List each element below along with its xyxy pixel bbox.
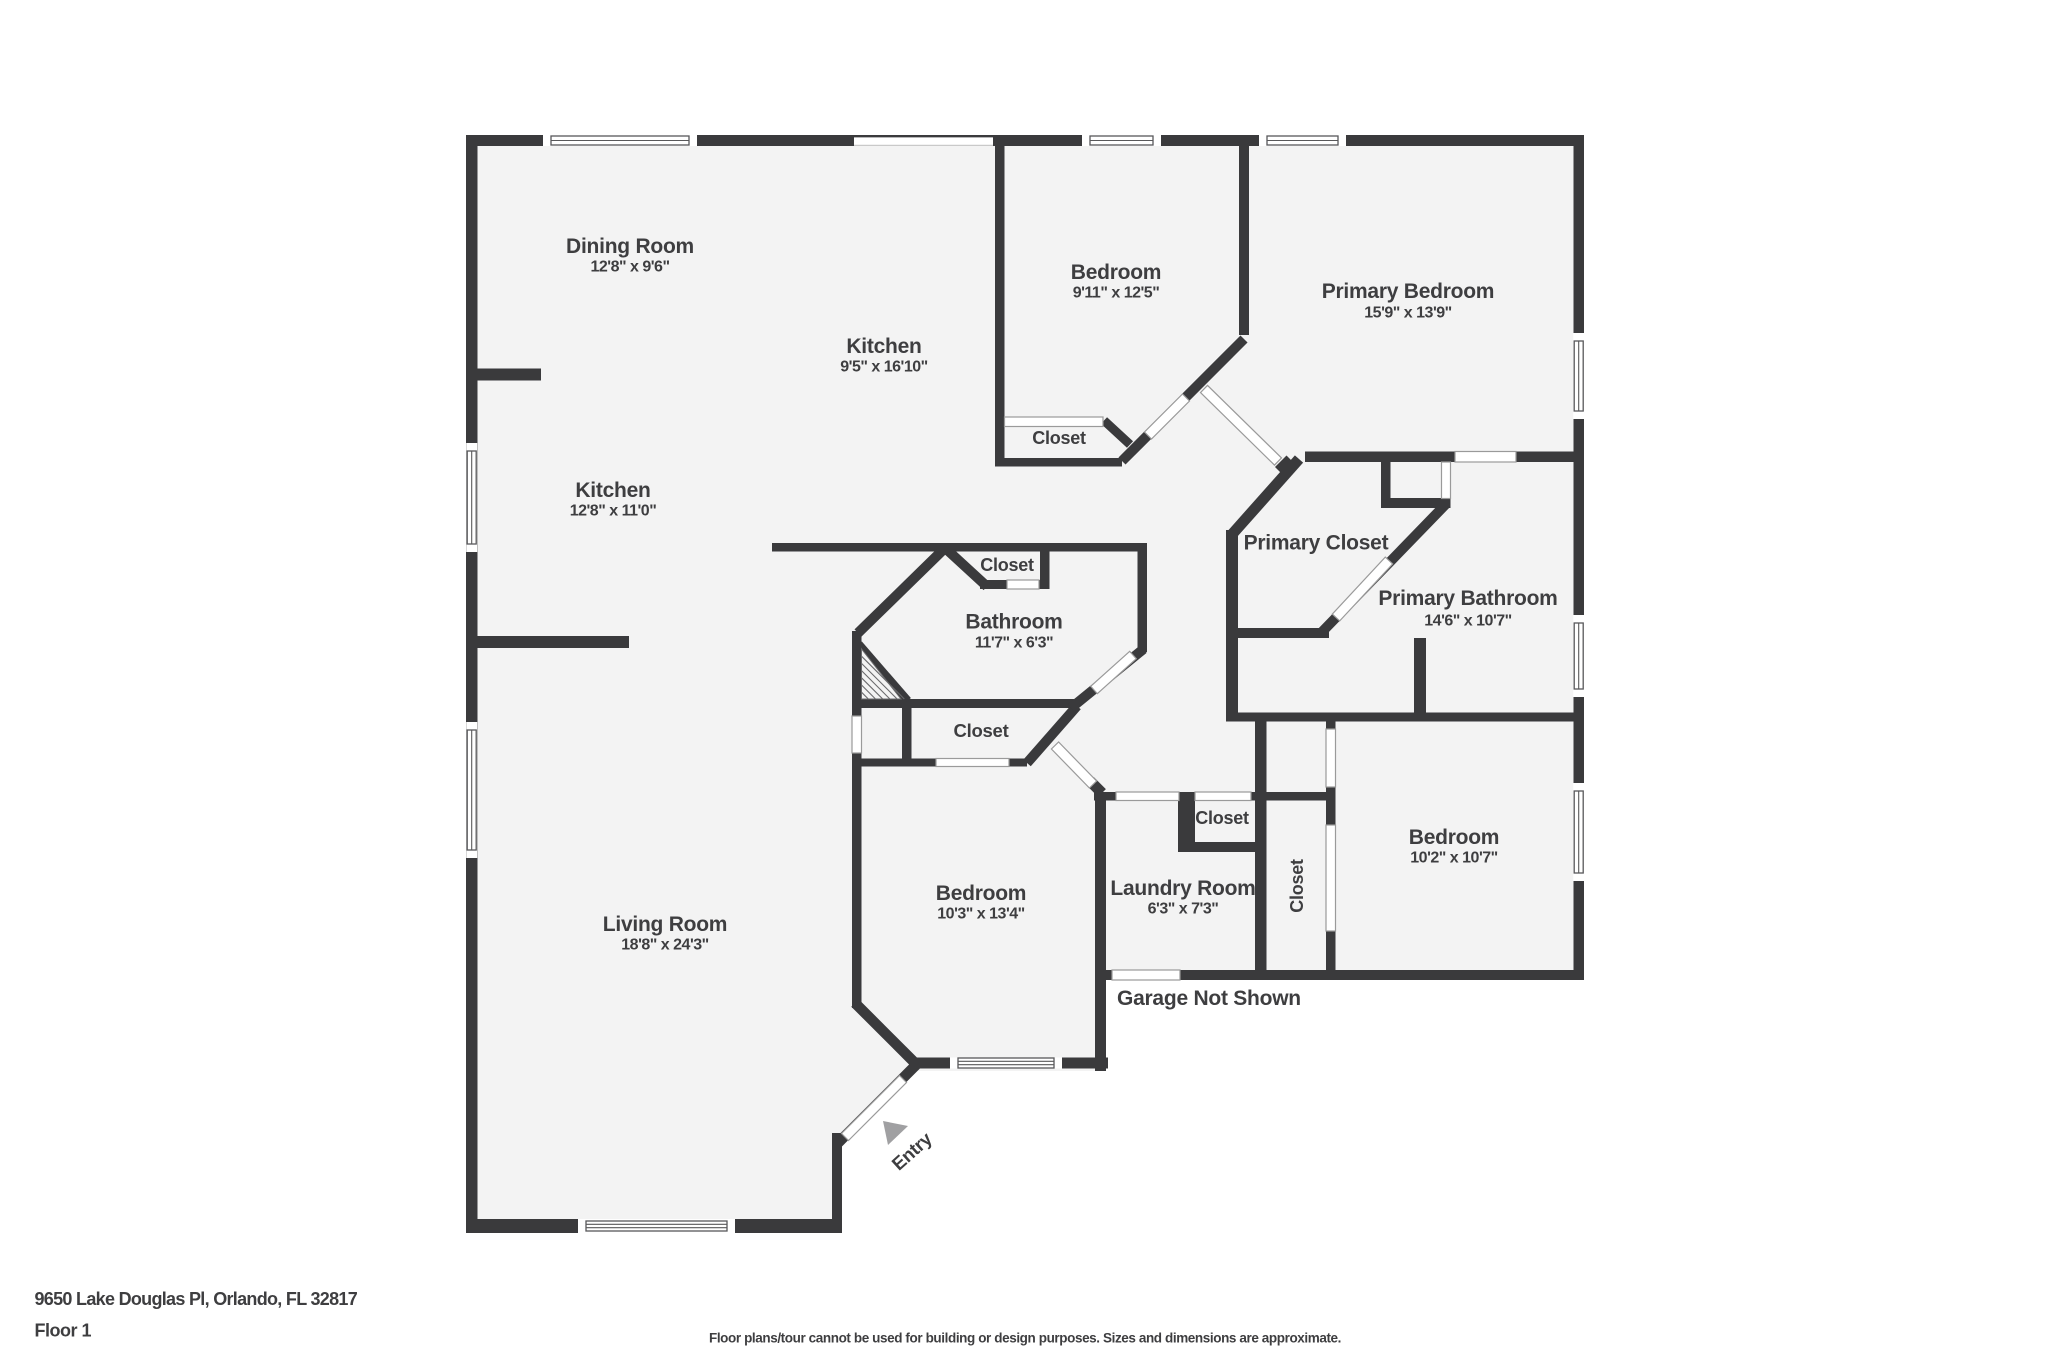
svg-text:Primary Bedroom: Primary Bedroom bbox=[1322, 280, 1494, 303]
svg-text:9'11" x 12'5": 9'11" x 12'5" bbox=[1073, 285, 1160, 302]
svg-text:Kitchen: Kitchen bbox=[846, 335, 921, 358]
svg-text:Bathroom: Bathroom bbox=[965, 611, 1062, 634]
svg-text:Garage Not Shown: Garage Not Shown bbox=[1117, 987, 1301, 1010]
svg-text:Closet: Closet bbox=[1195, 808, 1249, 828]
svg-text:11'7" x 6'3": 11'7" x 6'3" bbox=[975, 635, 1053, 652]
svg-text:Closet: Closet bbox=[1032, 428, 1086, 448]
svg-text:10'2" x 10'7": 10'2" x 10'7" bbox=[1410, 850, 1497, 867]
svg-text:Living Room: Living Room bbox=[603, 913, 727, 936]
svg-text:15'9" x 13'9": 15'9" x 13'9" bbox=[1364, 305, 1451, 322]
svg-text:Closet: Closet bbox=[1287, 859, 1307, 913]
svg-text:10'3" x 13'4": 10'3" x 13'4" bbox=[937, 906, 1024, 923]
svg-text:Kitchen: Kitchen bbox=[575, 479, 650, 502]
svg-text:12'8" x 9'6": 12'8" x 9'6" bbox=[590, 258, 669, 275]
svg-text:Bedroom: Bedroom bbox=[1409, 826, 1499, 849]
svg-text:Closet: Closet bbox=[953, 720, 1008, 741]
svg-text:18'8" x 24'3": 18'8" x 24'3" bbox=[621, 937, 708, 954]
svg-text:Floor 1: Floor 1 bbox=[35, 1321, 92, 1341]
svg-text:Dining Room: Dining Room bbox=[566, 235, 694, 258]
svg-text:6'3" x 7'3": 6'3" x 7'3" bbox=[1148, 901, 1219, 918]
svg-text:Primary Closet: Primary Closet bbox=[1244, 532, 1389, 555]
svg-text:12'8" x 11'0": 12'8" x 11'0" bbox=[570, 503, 657, 520]
svg-text:Closet: Closet bbox=[980, 555, 1034, 575]
svg-text:14'6" x 10'7": 14'6" x 10'7" bbox=[1424, 613, 1511, 630]
svg-text:9650 Lake Douglas Pl, Orlando,: 9650 Lake Douglas Pl, Orlando, FL 32817 bbox=[35, 1289, 358, 1309]
svg-text:Bedroom: Bedroom bbox=[1071, 261, 1161, 284]
svg-text:Laundry Room: Laundry Room bbox=[1110, 877, 1255, 900]
svg-text:Primary Bathroom: Primary Bathroom bbox=[1378, 587, 1557, 610]
svg-text:9'5" x 16'10": 9'5" x 16'10" bbox=[840, 359, 927, 376]
svg-text:Floor plans/tour cannot be use: Floor plans/tour cannot be used for buil… bbox=[709, 1331, 1341, 1346]
svg-text:Bedroom: Bedroom bbox=[936, 882, 1026, 905]
